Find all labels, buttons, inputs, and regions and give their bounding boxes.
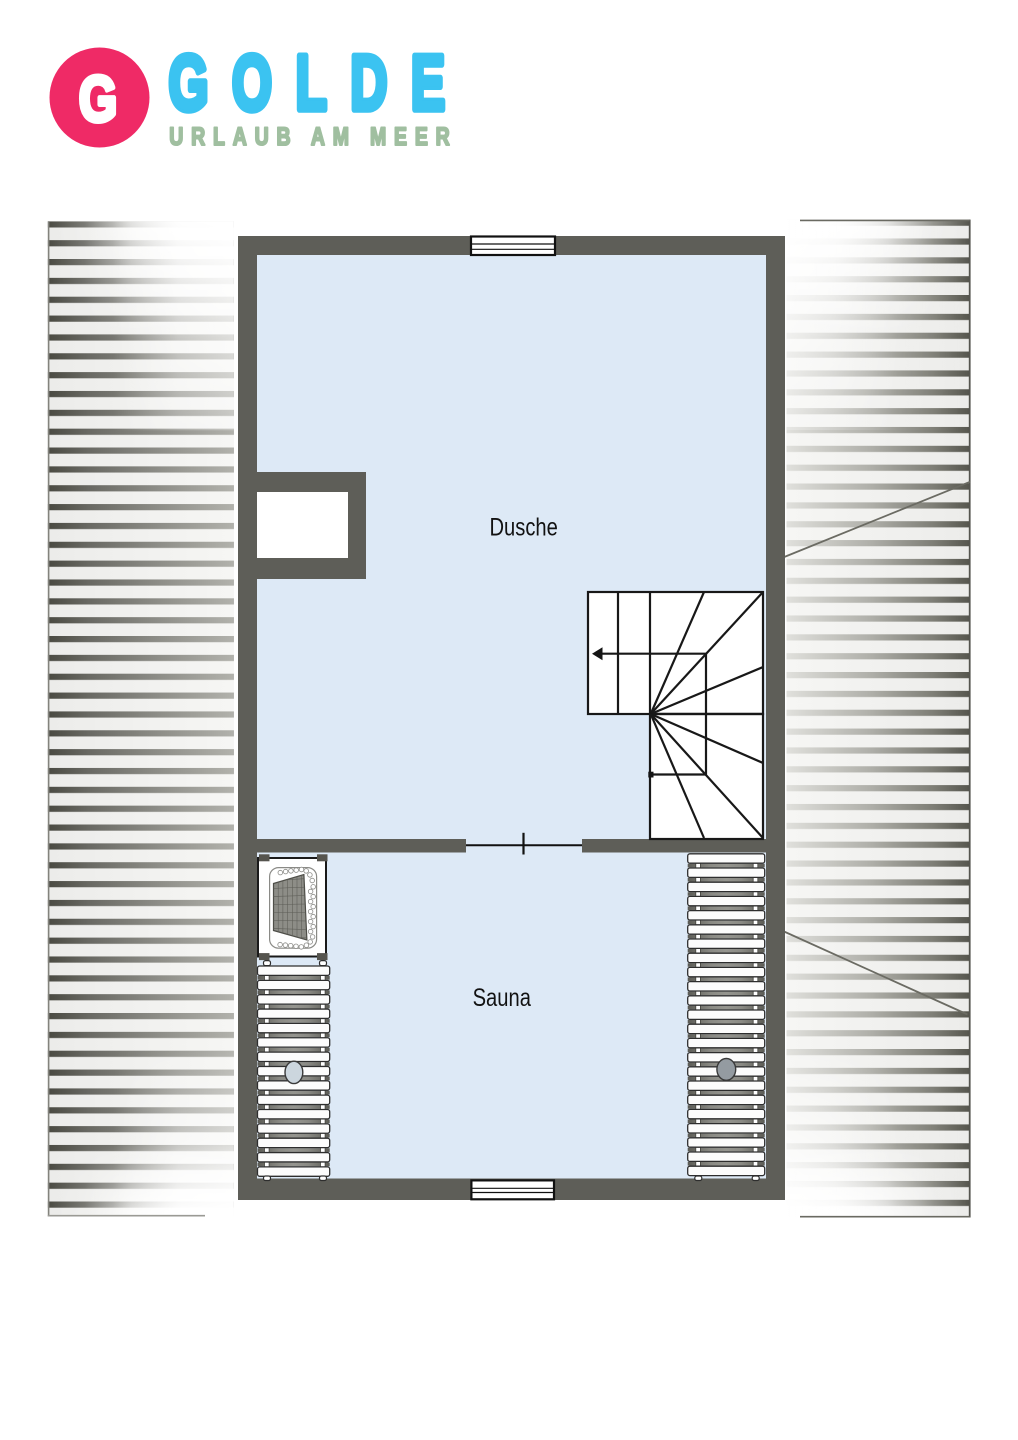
svg-text:Dusche: Dusche: [490, 514, 558, 541]
svg-text:G: G: [79, 64, 117, 136]
svg-text:URLAUB AM MEER: URLAUB AM MEER: [169, 123, 457, 151]
svg-text:GOLDE: GOLDE: [169, 40, 469, 127]
svg-text:Sauna: Sauna: [473, 984, 532, 1011]
